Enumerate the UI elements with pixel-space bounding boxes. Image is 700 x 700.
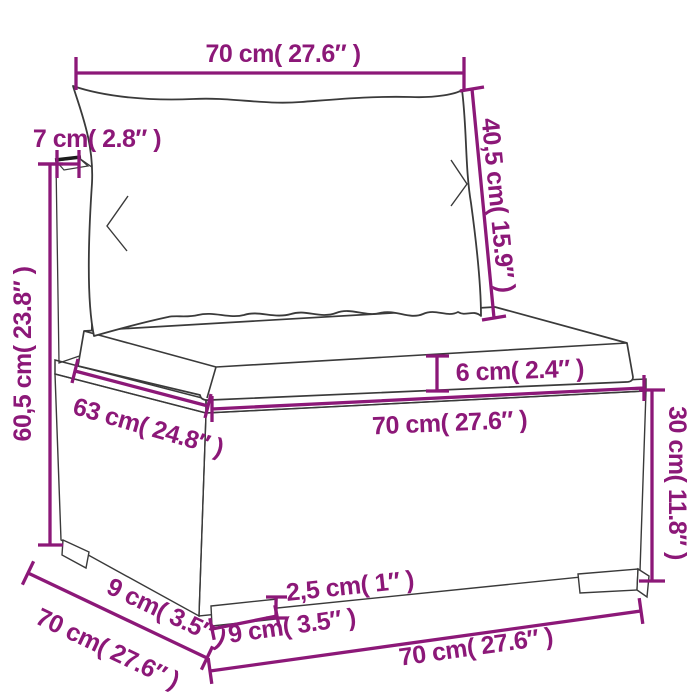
dimension-back-thickness-label: 7 cm( 2.8″ ) [33,125,161,153]
leg-left [62,540,89,568]
dimension-seat-front-width-label: 70 cm( 27.6″ ) [372,406,528,441]
dimension-top-width-label: 70 cm( 27.6″ ) [205,40,360,68]
dimension-seat-edge-depth-label: 63 cm( 24.8″ ) [70,392,227,462]
dimension-base-height: 30 cm( 11.8″ ) [639,390,691,581]
back-cushion [73,86,481,336]
sofa-dimension-diagram: 70 cm( 27.6″ ) 7 cm( 2.8″ ) 40,5 cm( 15.… [0,0,700,700]
dimension-total-height: 60,5 cm( 23.8″ ) [9,164,63,545]
dimension-bottom-front-width-label: 70 cm( 27.6″ ) [397,622,555,671]
dimension-side-depth: 9 cm( 3.5″ ) 70 cm( 27.6″ ) [22,561,230,694]
dimension-cushion-thickness-label: 6 cm( 2.4″ ) [455,355,584,387]
dimension-top-width: 70 cm( 27.6″ ) [76,40,464,90]
dimension-total-height-label: 60,5 cm( 23.8″ ) [9,266,37,441]
leg-front-right [578,569,638,593]
leg-front-right-side-face [637,569,649,597]
seat-cushion [78,307,633,400]
dimension-base-height-label: 30 cm( 11.8″ ) [663,406,691,560]
